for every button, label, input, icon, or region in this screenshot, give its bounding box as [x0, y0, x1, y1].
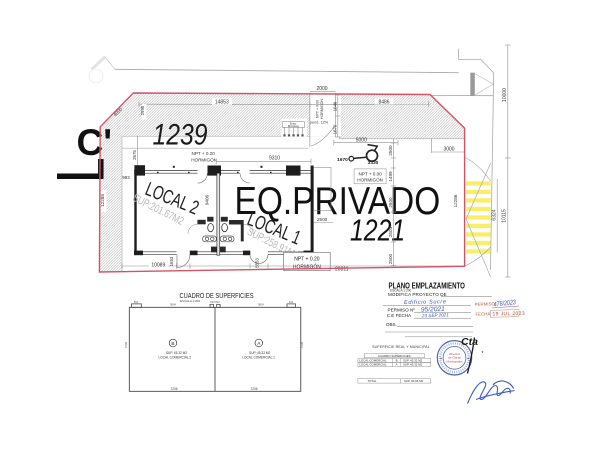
svg-text:1670: 1670 — [332, 124, 337, 134]
svg-text:HORMIGÓN: HORMIGÓN — [319, 99, 324, 120]
svg-text:PERMISO Nº: PERMISO Nº — [388, 307, 416, 312]
svg-text:Edificio Sucre: Edificio Sucre — [404, 299, 447, 306]
svg-text:9310: 9310 — [269, 156, 280, 162]
svg-text:NPT + 0.20: NPT + 0.20 — [294, 256, 320, 262]
svg-text:1046: 1046 — [332, 101, 337, 111]
svg-text:1239: 1239 — [153, 117, 208, 151]
svg-text:2500: 2500 — [388, 197, 393, 208]
svg-text:3000: 3000 — [443, 147, 454, 153]
svg-text:ESCALA 1:200: ESCALA 1:200 — [180, 299, 200, 303]
svg-text:841: 841 — [134, 300, 139, 304]
svg-text:343: 343 — [289, 300, 294, 304]
svg-text:A: A — [257, 341, 261, 347]
svg-text:C.E FECHA: C.E FECHA — [387, 313, 412, 318]
svg-text:20811: 20811 — [335, 266, 349, 272]
svg-text:Bicicletas: Bicicletas — [288, 124, 300, 128]
svg-text:★: ★ — [439, 356, 442, 360]
svg-text:7206: 7206 — [170, 387, 177, 391]
svg-text:1653: 1653 — [169, 256, 174, 266]
svg-text:CUADRO SUPERFICIES: CUADRO SUPERFICIES — [378, 354, 411, 358]
svg-text:2990: 2990 — [140, 105, 145, 115]
svg-text:993: 993 — [122, 175, 130, 180]
svg-text:pend. 12%: pend. 12% — [310, 121, 329, 125]
svg-text:LOCAL COMERCIAL: LOCAL COMERCIAL — [359, 363, 387, 367]
svg-text:1499: 1499 — [388, 171, 393, 182]
svg-text:NPT + 0.00: NPT + 0.00 — [358, 171, 382, 176]
svg-text:*: * — [482, 351, 484, 357]
svg-text:14853: 14853 — [215, 99, 229, 105]
svg-text:5553: 5553 — [255, 258, 260, 268]
svg-text:LOCAL COMERCIAL 1: LOCAL COMERCIAL 1 — [242, 356, 275, 360]
svg-text:SUPERFICIE REAL Y MUNICIPAL: SUPERFICIE REAL Y MUNICIPAL — [372, 345, 430, 349]
svg-text:FECHA: FECHA — [475, 311, 490, 317]
svg-text:5824: 5824 — [258, 303, 264, 307]
svg-text:810 810: 810 810 — [210, 300, 220, 304]
svg-text:2500: 2500 — [317, 217, 328, 222]
svg-text:2500: 2500 — [388, 253, 393, 264]
svg-text:PERMISO: PERMISO — [475, 301, 496, 307]
svg-text:OBS.: OBS. — [386, 322, 397, 327]
svg-text:MODIFICA PROYECTO DE: MODIFICA PROYECTO DE — [388, 292, 447, 297]
svg-text:10089: 10089 — [151, 263, 165, 269]
svg-text:2575: 2575 — [132, 150, 137, 160]
svg-text:2500: 2500 — [388, 145, 393, 156]
svg-text:7206: 7206 — [250, 387, 257, 391]
svg-text:12286: 12286 — [453, 194, 458, 207]
svg-text:6324: 6324 — [491, 209, 497, 220]
svg-text:C': C' — [77, 122, 113, 163]
svg-text:Municipales: Municipales — [446, 359, 463, 363]
svg-text:SUP. 45.32 M2: SUP. 45.32 M2 — [403, 363, 423, 367]
svg-text:9406: 9406 — [204, 194, 209, 205]
svg-text:10000: 10000 — [502, 88, 508, 102]
svg-text:10115: 10115 — [502, 209, 508, 223]
svg-text:★: ★ — [466, 356, 469, 360]
svg-text:1670: 1670 — [337, 157, 348, 163]
svg-text:12288: 12288 — [100, 194, 105, 207]
svg-text:NPT + 0.20: NPT + 0.20 — [192, 151, 216, 156]
svg-text:HORMIGÓN: HORMIGÓN — [191, 157, 217, 163]
svg-text:TOTAL: TOTAL — [367, 379, 376, 383]
svg-text:Cta: Cta — [461, 336, 478, 348]
svg-text:SUP. 90.64 M2: SUP. 90.64 M2 — [404, 379, 424, 383]
svg-text:1221: 1221 — [350, 213, 405, 247]
svg-text:19 JUL 2023: 19 JUL 2023 — [492, 311, 525, 318]
svg-text:7308: 7308 — [300, 341, 304, 348]
svg-text:5804: 5804 — [170, 303, 176, 307]
svg-text:2503: 2503 — [388, 226, 393, 237]
svg-text:LOCAL COMERCIAL 2: LOCAL COMERCIAL 2 — [158, 356, 191, 360]
svg-text:B: B — [171, 341, 174, 347]
svg-text:5000: 5000 — [356, 138, 367, 144]
svg-text:A: A — [396, 363, 398, 367]
svg-text:8486: 8486 — [378, 99, 389, 105]
svg-text:2000: 2000 — [316, 86, 327, 92]
svg-text:23 SEP 2021: 23 SEP 2021 — [421, 312, 450, 318]
svg-text:7308: 7308 — [124, 341, 128, 348]
svg-text:3330: 3330 — [368, 160, 379, 166]
